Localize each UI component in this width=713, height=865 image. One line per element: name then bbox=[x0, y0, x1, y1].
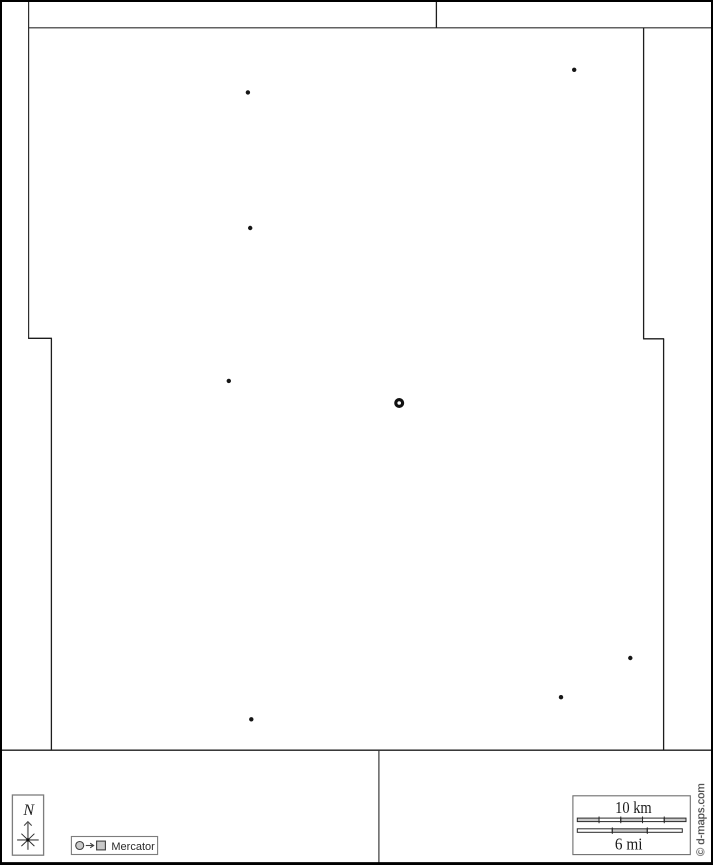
svg-text:10 km: 10 km bbox=[615, 798, 652, 817]
svg-text:N: N bbox=[22, 802, 35, 819]
svg-text:6 mi: 6 mi bbox=[615, 835, 643, 854]
svg-text:© d-maps.com: © d-maps.com bbox=[695, 783, 707, 856]
svg-text:Mercator: Mercator bbox=[111, 841, 155, 853]
